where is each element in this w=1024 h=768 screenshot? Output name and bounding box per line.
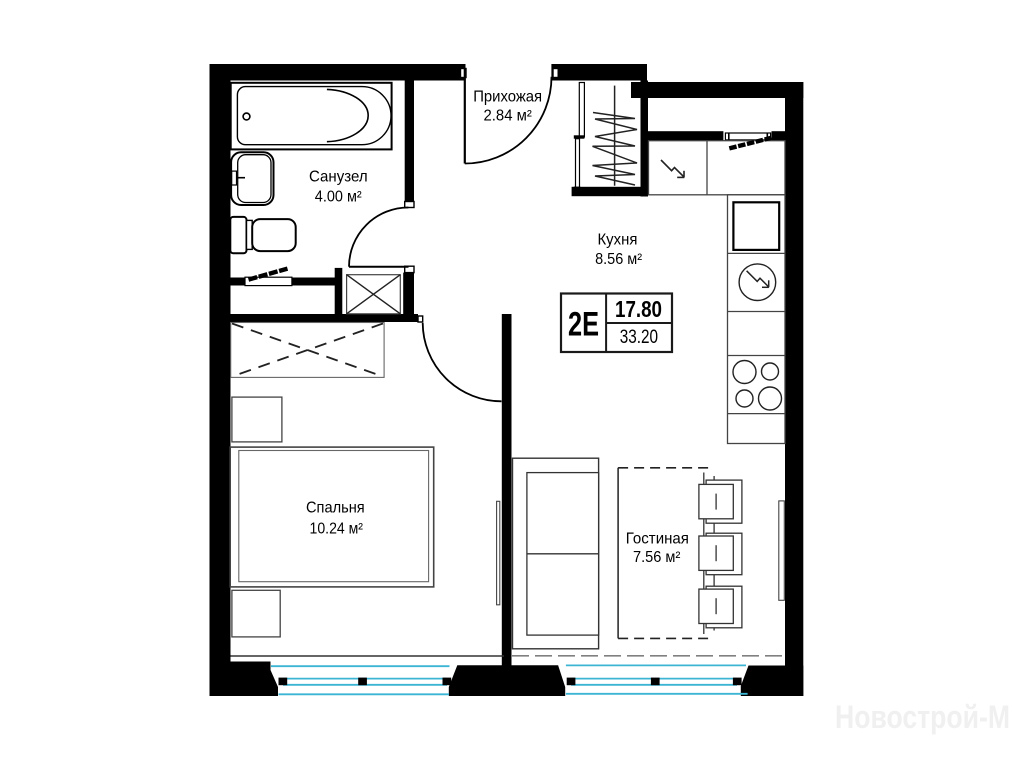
svg-text:Гостиная: Гостиная [626,530,689,547]
svg-text:8.56 м²: 8.56 м² [595,251,642,268]
svg-text:Новострой-М: Новострой-М [835,699,1010,735]
svg-text:7.56 м²: 7.56 м² [633,549,680,566]
svg-text:2Е: 2Е [568,306,599,344]
svg-text:Кухня: Кухня [598,231,638,248]
svg-text:10.24 м²: 10.24 м² [310,521,364,538]
svg-text:Прихожая: Прихожая [473,88,542,105]
svg-text:17.80: 17.80 [615,296,662,322]
svg-text:Спальня: Спальня [306,499,365,516]
svg-text:33.20: 33.20 [620,327,658,348]
svg-text:2.84 м²: 2.84 м² [484,107,532,124]
svg-text:Санузел: Санузел [309,169,368,186]
svg-text:4.00 м²: 4.00 м² [315,189,362,206]
